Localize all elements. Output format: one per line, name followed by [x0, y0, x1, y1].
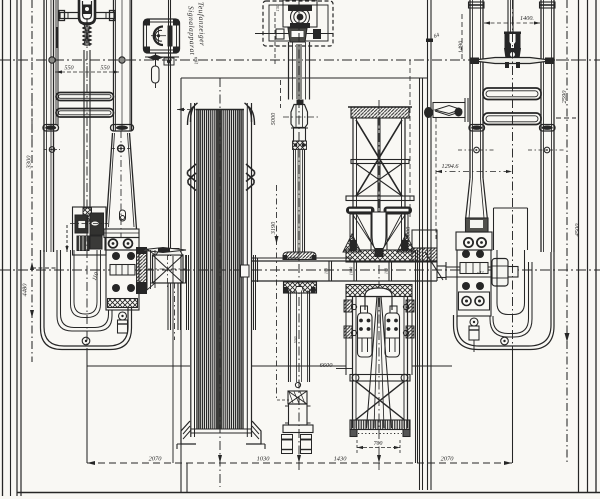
- svg-text:2070: 2070: [441, 456, 455, 463]
- svg-text:4500: 4500: [574, 223, 581, 237]
- svg-text:2070: 2070: [149, 456, 163, 463]
- svg-text:180: 180: [384, 267, 389, 274]
- svg-text:1000: 1000: [349, 266, 354, 275]
- svg-text:700: 700: [374, 441, 383, 447]
- svg-text:1430: 1430: [334, 456, 348, 463]
- svg-text:6600: 6600: [320, 362, 334, 369]
- svg-text:5000: 5000: [405, 226, 412, 239]
- svg-text:Teufanzeiger: Teufanzeiger: [197, 2, 208, 47]
- svg-text:550: 550: [293, 336, 298, 344]
- svg-text:550: 550: [100, 65, 110, 72]
- svg-text:1400.: 1400.: [520, 15, 534, 22]
- svg-text:1490: 1490: [458, 40, 465, 53]
- svg-text:3190: 3190: [270, 221, 277, 235]
- svg-text:180: 180: [324, 267, 329, 274]
- svg-text:4480: 4480: [22, 283, 29, 297]
- svg-text:1030: 1030: [257, 456, 271, 463]
- svg-text:550: 550: [64, 65, 74, 72]
- svg-text:mit: mit: [193, 57, 199, 65]
- svg-text:5000: 5000: [270, 112, 277, 125]
- svg-text:Signalapparat: Signalapparat: [187, 6, 198, 56]
- svg-text:2590: 2590: [561, 90, 568, 104]
- svg-text:1294.6: 1294.6: [441, 163, 459, 170]
- svg-text:150: 150: [275, 4, 280, 12]
- svg-text:3300: 3300: [26, 155, 33, 170]
